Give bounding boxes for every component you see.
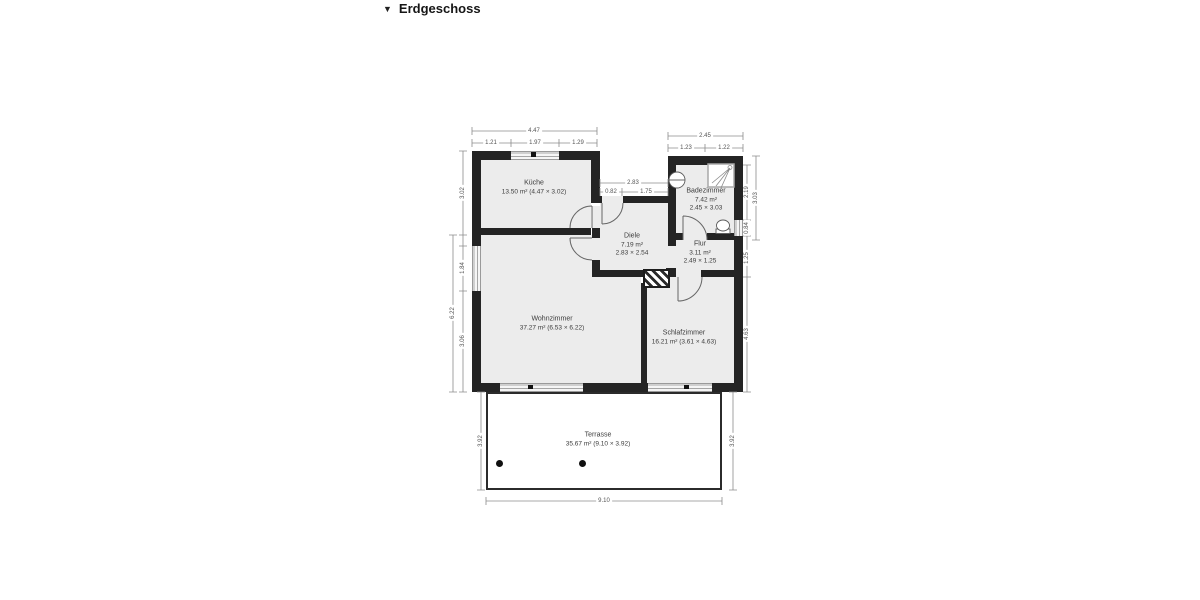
dimension-label: 1.97 — [527, 140, 543, 146]
room-label-flur: Flur 3.11 m² 2.49 × 1.25 — [684, 241, 717, 266]
door-arc-entrance — [602, 203, 623, 224]
floorplan-page: ▼ Erdgeschoss — [0, 0, 1200, 600]
room-name: Diele — [616, 233, 649, 242]
dimension-label: 4.47 — [526, 128, 542, 134]
dimension-label: 0.82 — [603, 189, 619, 195]
dimension-label: 3.06 — [460, 333, 466, 349]
door-arc-schlafzimmer — [678, 277, 702, 301]
room-label-diele: Diele 7.19 m² 2.83 × 2.54 — [616, 233, 649, 258]
room-size: 2.45 × 3.03 — [686, 204, 725, 212]
dimension-label: 2.83 — [625, 180, 641, 186]
room-label-wohnzimmer: Wohnzimmer 37.27 m² (6.53 × 6.22) — [520, 316, 585, 333]
door-arc-kueche — [570, 206, 592, 228]
dimension-label: 4.63 — [744, 326, 750, 342]
room-size: 2.49 × 1.25 — [684, 257, 717, 265]
room-info: 16.21 m² (3.61 × 4.63) — [652, 338, 717, 346]
room-label-kueche: Küche 13.50 m² (4.47 × 3.02) — [502, 180, 567, 197]
room-area: 7.42 m² — [686, 196, 725, 204]
dimension-label: 1.22 — [716, 145, 732, 151]
dimension-label: 2.19 — [744, 184, 750, 200]
room-label-schlafzimmer: Schlafzimmer 16.21 m² (3.61 × 4.63) — [652, 330, 717, 347]
room-info: 37.27 m² (6.53 × 6.22) — [520, 324, 585, 332]
dimension-label: 0.84 — [744, 220, 750, 236]
room-info: 13.50 m² (4.47 × 3.02) — [502, 188, 567, 196]
room-area: 7.19 m² — [616, 241, 649, 249]
dimension-label: 3.92 — [478, 433, 484, 449]
sink-icon — [669, 172, 685, 188]
room-name: Wohnzimmer — [520, 316, 585, 325]
room-area: 3.11 m² — [684, 249, 717, 257]
dimension-label: 1.29 — [570, 140, 586, 146]
door-arc-wohnzimmer — [570, 238, 592, 260]
dimension-label: 3.92 — [730, 433, 736, 449]
dimension-label: 2.45 — [697, 133, 713, 139]
dimension-label: 1.21 — [483, 140, 499, 146]
dimension-label: 1.25 — [744, 250, 750, 266]
room-info: 35.67 m² (9.10 × 3.92) — [566, 440, 631, 448]
room-name: Küche — [502, 180, 567, 189]
room-label-terrasse: Terrasse 35.67 m² (9.10 × 3.92) — [566, 432, 631, 449]
room-name: Terrasse — [566, 432, 631, 441]
room-name: Schlafzimmer — [652, 330, 717, 339]
dimension-label: 1.84 — [460, 260, 466, 276]
dimension-label: 1.23 — [678, 145, 694, 151]
shower-icon — [708, 164, 734, 188]
plan-details-svg — [0, 0, 1200, 600]
dimension-label: 3.03 — [753, 190, 759, 206]
dimension-label: 6.22 — [450, 305, 456, 321]
room-name: Badezimmer — [686, 188, 725, 197]
room-size: 2.83 × 2.54 — [616, 249, 649, 257]
dimension-label: 9.10 — [596, 498, 612, 504]
toilet-icon — [716, 220, 730, 234]
door-arc-badezimmer — [683, 216, 707, 240]
dimension-label: 1.75 — [638, 189, 654, 195]
room-label-badezimmer: Badezimmer 7.42 m² 2.45 × 3.03 — [686, 188, 725, 213]
dimension-label: 3.02 — [460, 185, 466, 201]
room-name: Flur — [684, 241, 717, 250]
